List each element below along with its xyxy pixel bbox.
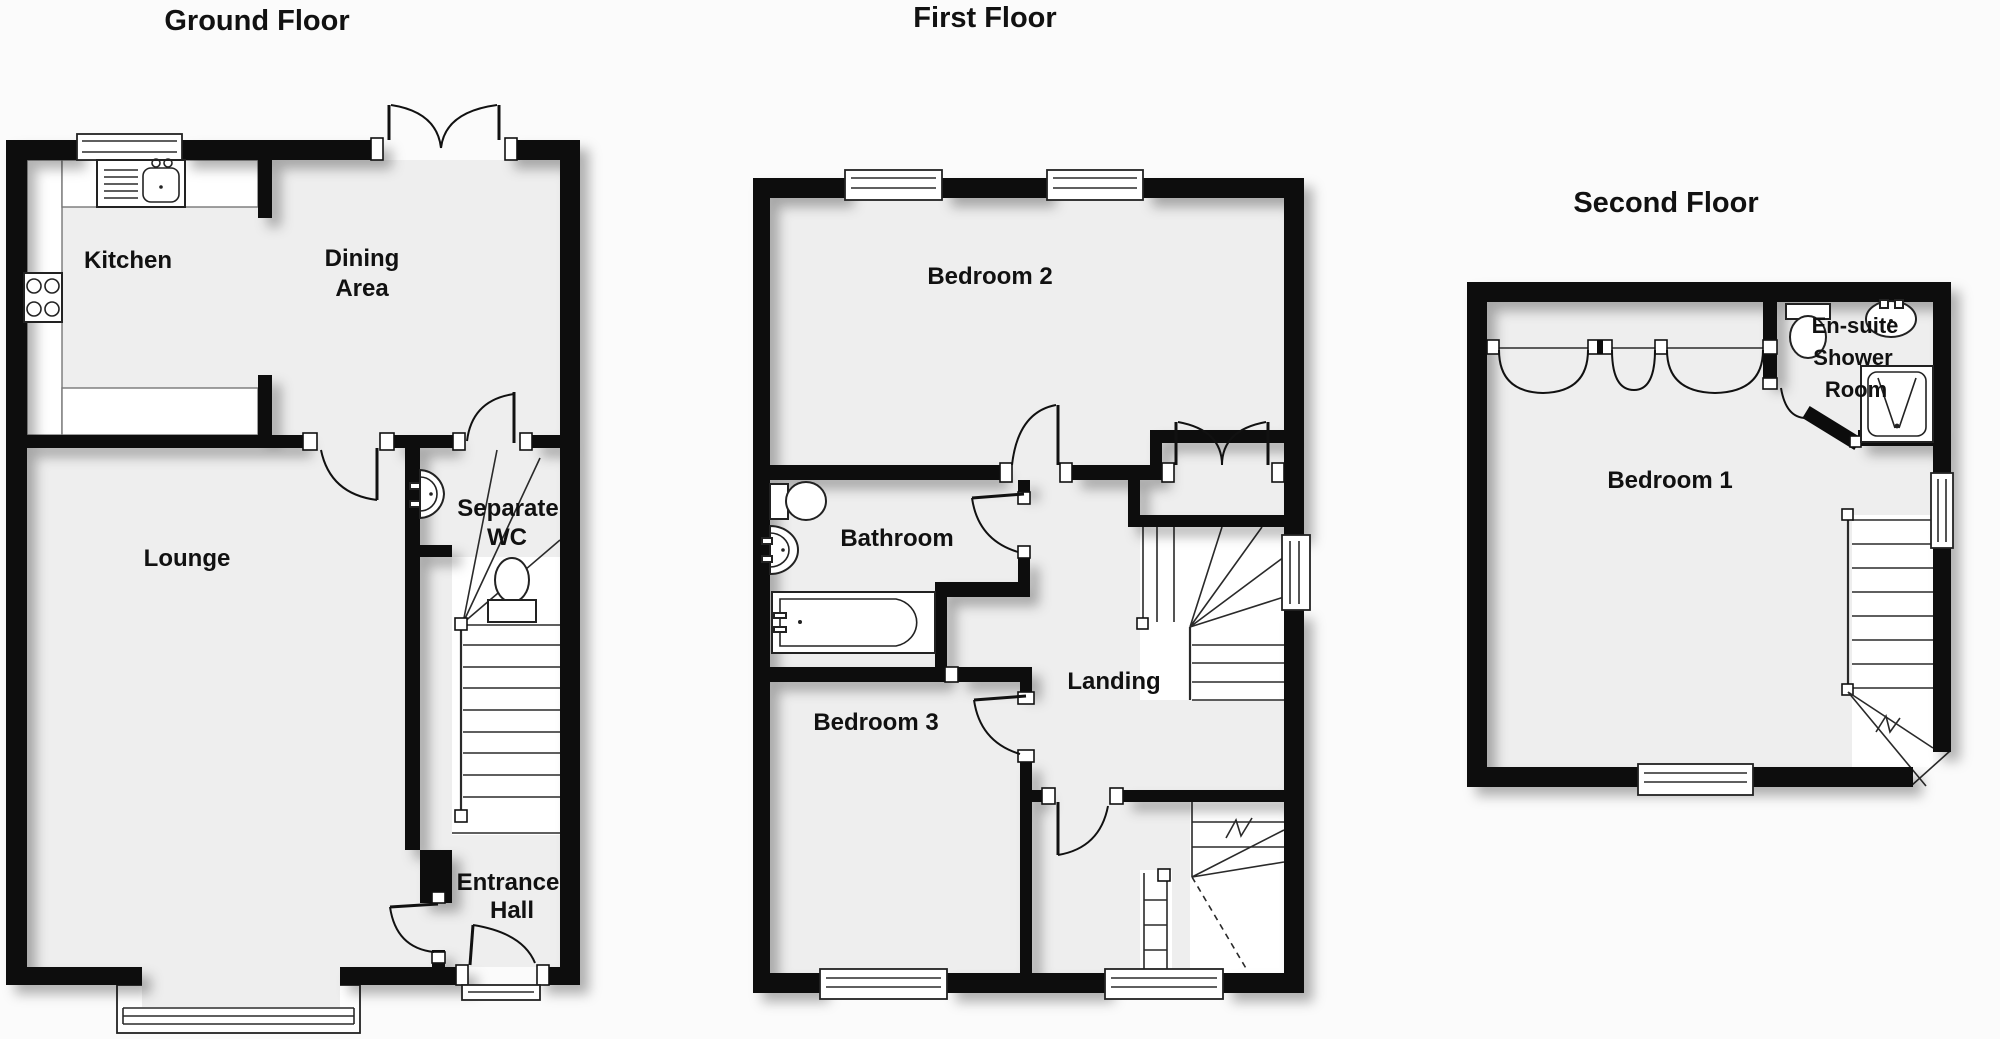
second-floor-plan: Second Floor Bedroom 1 En-suite Shower R… (1467, 187, 1953, 795)
bedroom3-label: Bedroom 3 (813, 709, 938, 736)
lounge-label: Lounge (144, 545, 231, 572)
ensuite-label-line3: Room (1825, 377, 1887, 402)
first-floor-title: First Floor (913, 2, 1056, 34)
floorplan-drawing: Ground Floor Kitchen Dining Area Lounge … (0, 0, 2000, 1039)
bathroom-toilet (770, 482, 826, 520)
bedroom1-label: Bedroom 1 (1607, 467, 1732, 494)
bedroom2-window-left (845, 170, 942, 200)
dining-french-doors (389, 105, 499, 148)
ground-floor-plan: Ground Floor Kitchen Dining Area Lounge … (6, 5, 580, 1033)
bedroom2-label: Bedroom 2 (927, 263, 1052, 290)
bathtub (772, 592, 935, 653)
front-door-threshold (462, 985, 540, 1000)
wc-label-line2: WC (487, 524, 527, 551)
ensuite-label-line2: Shower (1813, 345, 1893, 370)
ensuite-label-line1: En-suite (1812, 313, 1899, 338)
landing-label: Landing (1067, 668, 1160, 695)
second-floor-title: Second Floor (1573, 187, 1758, 219)
bedroom2-window-right (1047, 170, 1143, 200)
hall-label-line1: Entrance (457, 869, 560, 896)
bedroom3-window (820, 969, 947, 999)
kitchen-label: Kitchen (84, 247, 172, 274)
first-floor-plan: First Floor Bedroom 2 Bathroom Landing B… (753, 2, 1310, 999)
kitchen-window (77, 134, 182, 160)
stairhall-window (1105, 969, 1223, 999)
dining-label-line2: Area (335, 275, 389, 302)
bedroom1-bottom-window (1638, 764, 1753, 795)
ground-floor-title: Ground Floor (164, 5, 349, 37)
hob (24, 273, 62, 322)
dining-label-line1: Dining (325, 245, 400, 272)
bedroom1-side-window (1931, 473, 1953, 548)
bathroom-label: Bathroom (840, 525, 953, 552)
wc-label-line1: Separate (457, 495, 558, 522)
kitchen-sink (97, 159, 185, 207)
hall-label-line2: Hall (490, 897, 534, 924)
stairwell-window (1282, 535, 1310, 610)
floorplan-page: Ground Floor Kitchen Dining Area Lounge … (0, 0, 2000, 1039)
